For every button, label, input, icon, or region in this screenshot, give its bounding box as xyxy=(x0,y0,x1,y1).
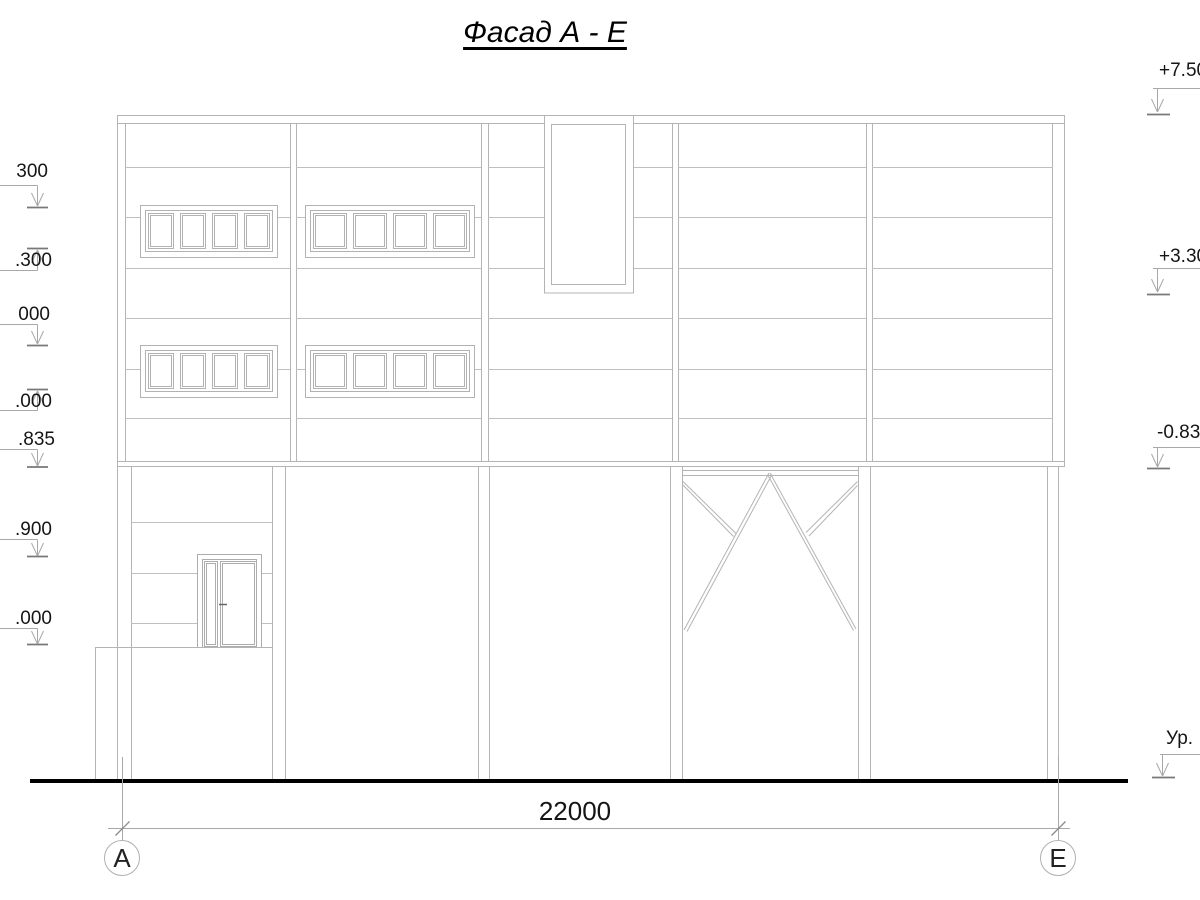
facade-drawing-sheet: Фасад А - Е 300 .300 000 .000 .835 .900 … xyxy=(0,0,1200,900)
window-strip-row1-right xyxy=(306,206,475,258)
elevation-label-left-5: .835 xyxy=(0,430,55,449)
elevation-label-left-4: .000 xyxy=(0,392,52,411)
window-strip-row1-left xyxy=(141,206,278,258)
facade-linework xyxy=(0,0,1200,900)
elevation-level-bar xyxy=(27,208,48,645)
door-bay-siding xyxy=(131,523,272,624)
elevation-level-bar xyxy=(1147,115,1175,778)
elevation-label-right-1: +7.50 xyxy=(1159,61,1200,80)
elevation-label-right-2: +3.30 xyxy=(1159,247,1200,266)
elevation-label-right-3: -0.83 xyxy=(1157,423,1200,442)
roof-tower xyxy=(545,116,634,294)
elevation-label-left-6: .900 xyxy=(0,520,52,539)
drawing-title: Фасад А - Е xyxy=(420,16,670,50)
x-brace xyxy=(682,471,858,632)
axis-bubble-e: Е xyxy=(1040,840,1076,876)
dimension-total-label: 22000 xyxy=(495,796,655,827)
porch-step xyxy=(95,647,272,780)
elevation-label-left-7: .000 xyxy=(0,609,52,628)
elevation-label-left-1: 300 xyxy=(0,162,48,181)
window-strip-row2-right xyxy=(306,346,475,398)
window-strips xyxy=(141,206,475,398)
elevation-label-left-3: 000 xyxy=(0,305,50,324)
ground-line xyxy=(30,779,1128,783)
axis-bubble-a: А xyxy=(104,840,140,876)
elevation-label-left-2: .300 xyxy=(0,251,52,270)
entrance-door xyxy=(198,555,262,648)
window-strip-row2-left xyxy=(141,346,278,398)
elevation-label-right-4: Ур. xyxy=(1166,729,1193,748)
